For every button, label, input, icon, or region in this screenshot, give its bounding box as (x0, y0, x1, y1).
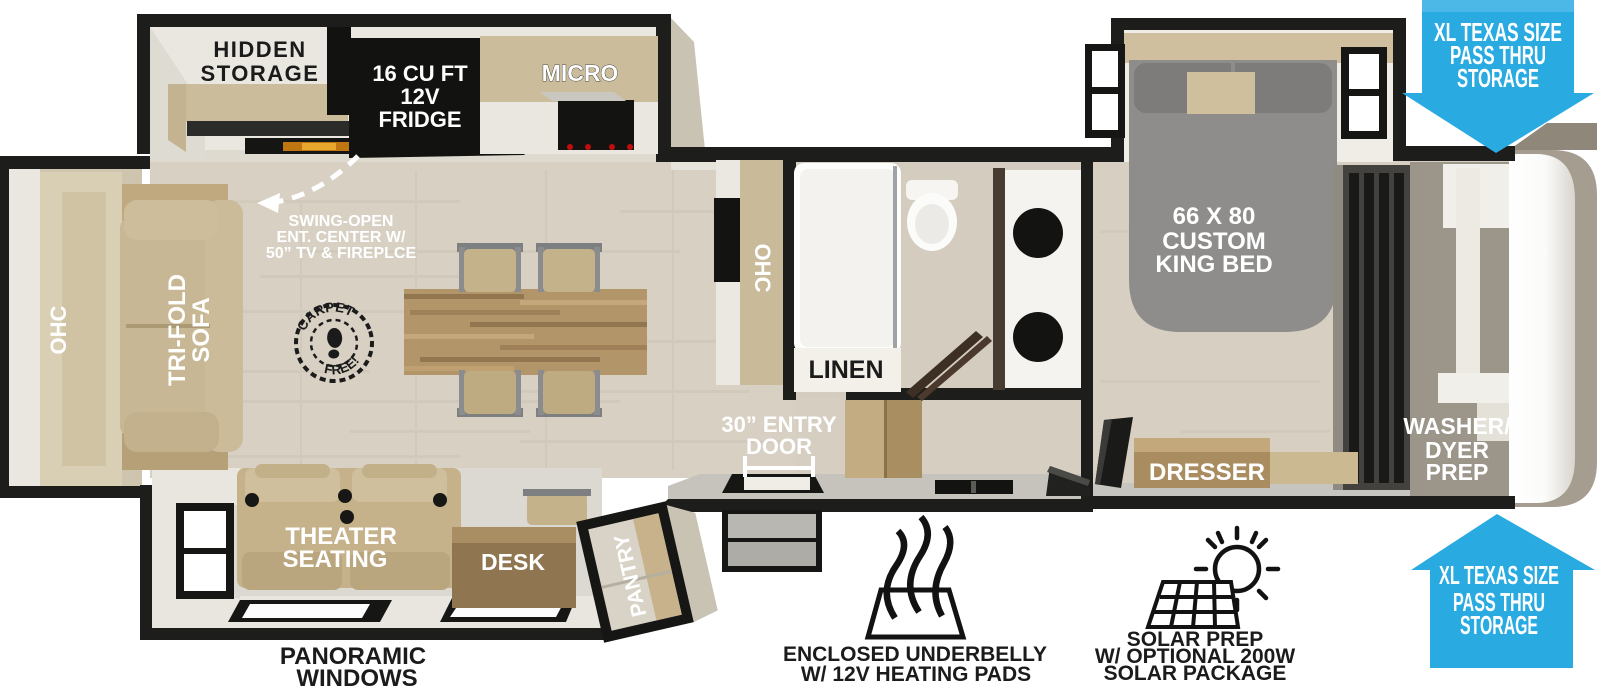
svg-text:OHC: OHC (46, 305, 71, 354)
svg-text:ENT. CENTER W/: ENT. CENTER W/ (277, 229, 406, 246)
svg-text:DRESSER: DRESSER (1149, 459, 1265, 486)
svg-text:W/ 12V HEATING PADS: W/ 12V HEATING PADS (801, 663, 1031, 686)
svg-text:KING BED: KING BED (1155, 251, 1272, 278)
svg-text:12V: 12V (400, 84, 439, 109)
svg-text:XL TEXAS SIZE: XL TEXAS SIZE (1439, 560, 1559, 590)
svg-text:FRIDGE: FRIDGE (378, 107, 461, 132)
svg-text:DOOR: DOOR (746, 434, 812, 459)
svg-text:TRI-FOLD: TRI-FOLD (164, 274, 191, 386)
svg-text:50” TV & FIREPLCE: 50” TV & FIREPLCE (266, 245, 417, 262)
svg-text:SOFA: SOFA (188, 297, 215, 362)
svg-text:STORAGE: STORAGE (1457, 63, 1539, 93)
svg-text:MICRO: MICRO (542, 60, 619, 86)
svg-text:PREP: PREP (1426, 459, 1489, 485)
svg-text:WINDOWS: WINDOWS (296, 665, 417, 688)
svg-text:DESK: DESK (481, 549, 545, 575)
svg-text:LINEN: LINEN (809, 356, 884, 384)
svg-text:16 CU FT: 16 CU FT (372, 61, 468, 86)
svg-text:STORAGE: STORAGE (201, 61, 320, 86)
svg-text:HIDDEN: HIDDEN (213, 37, 306, 62)
svg-text:SWING-OPEN: SWING-OPEN (289, 213, 394, 230)
svg-text:STORAGE: STORAGE (1460, 610, 1538, 640)
svg-text:SEATING: SEATING (283, 546, 388, 573)
svg-text:WASHER/: WASHER/ (1403, 413, 1511, 439)
svg-text:66 X 80: 66 X 80 (1173, 203, 1256, 230)
svg-text:SOLAR PACKAGE: SOLAR PACKAGE (1104, 662, 1287, 685)
svg-text:OHC: OHC (750, 244, 775, 293)
